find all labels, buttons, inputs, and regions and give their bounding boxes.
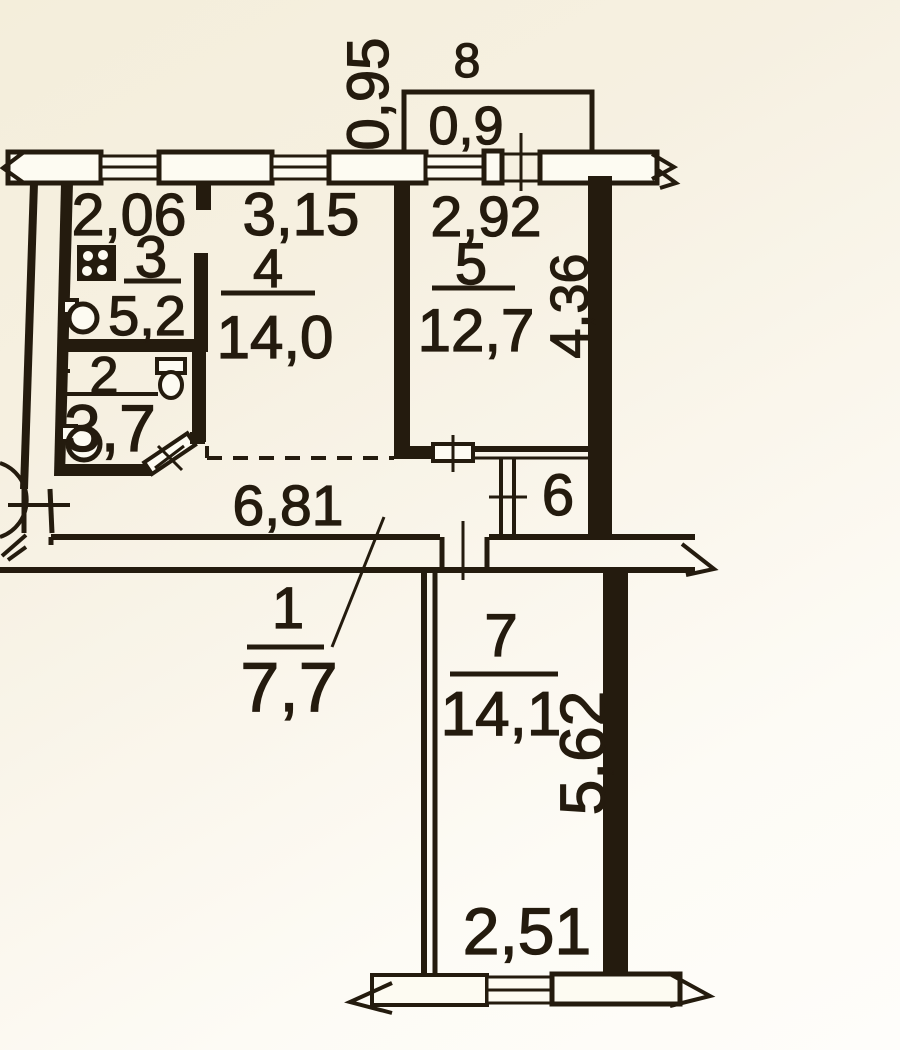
svg-text:14,1: 14,1 <box>441 680 562 749</box>
svg-text:4,36: 4,36 <box>540 253 600 358</box>
svg-text:4: 4 <box>253 239 283 299</box>
svg-text:3,15: 3,15 <box>243 181 360 248</box>
svg-text:0,9: 0,9 <box>428 96 503 156</box>
svg-text:14,0: 14,0 <box>217 304 334 371</box>
svg-text:7,7: 7,7 <box>240 648 337 726</box>
svg-text:1: 1 <box>272 576 304 641</box>
svg-text:2,06: 2,06 <box>72 182 187 248</box>
svg-text:5,2: 5,2 <box>108 284 186 347</box>
svg-text:3,7: 3,7 <box>64 391 156 465</box>
svg-text:6: 6 <box>542 463 574 528</box>
svg-text:7: 7 <box>484 602 517 669</box>
svg-text:8: 8 <box>454 35 481 88</box>
svg-text:12,7: 12,7 <box>418 297 535 364</box>
svg-text:5,62: 5,62 <box>547 691 619 816</box>
svg-text:2,51: 2,51 <box>463 894 591 968</box>
svg-text:6,81: 6,81 <box>233 474 344 538</box>
svg-text:0,95: 0,95 <box>336 38 401 151</box>
